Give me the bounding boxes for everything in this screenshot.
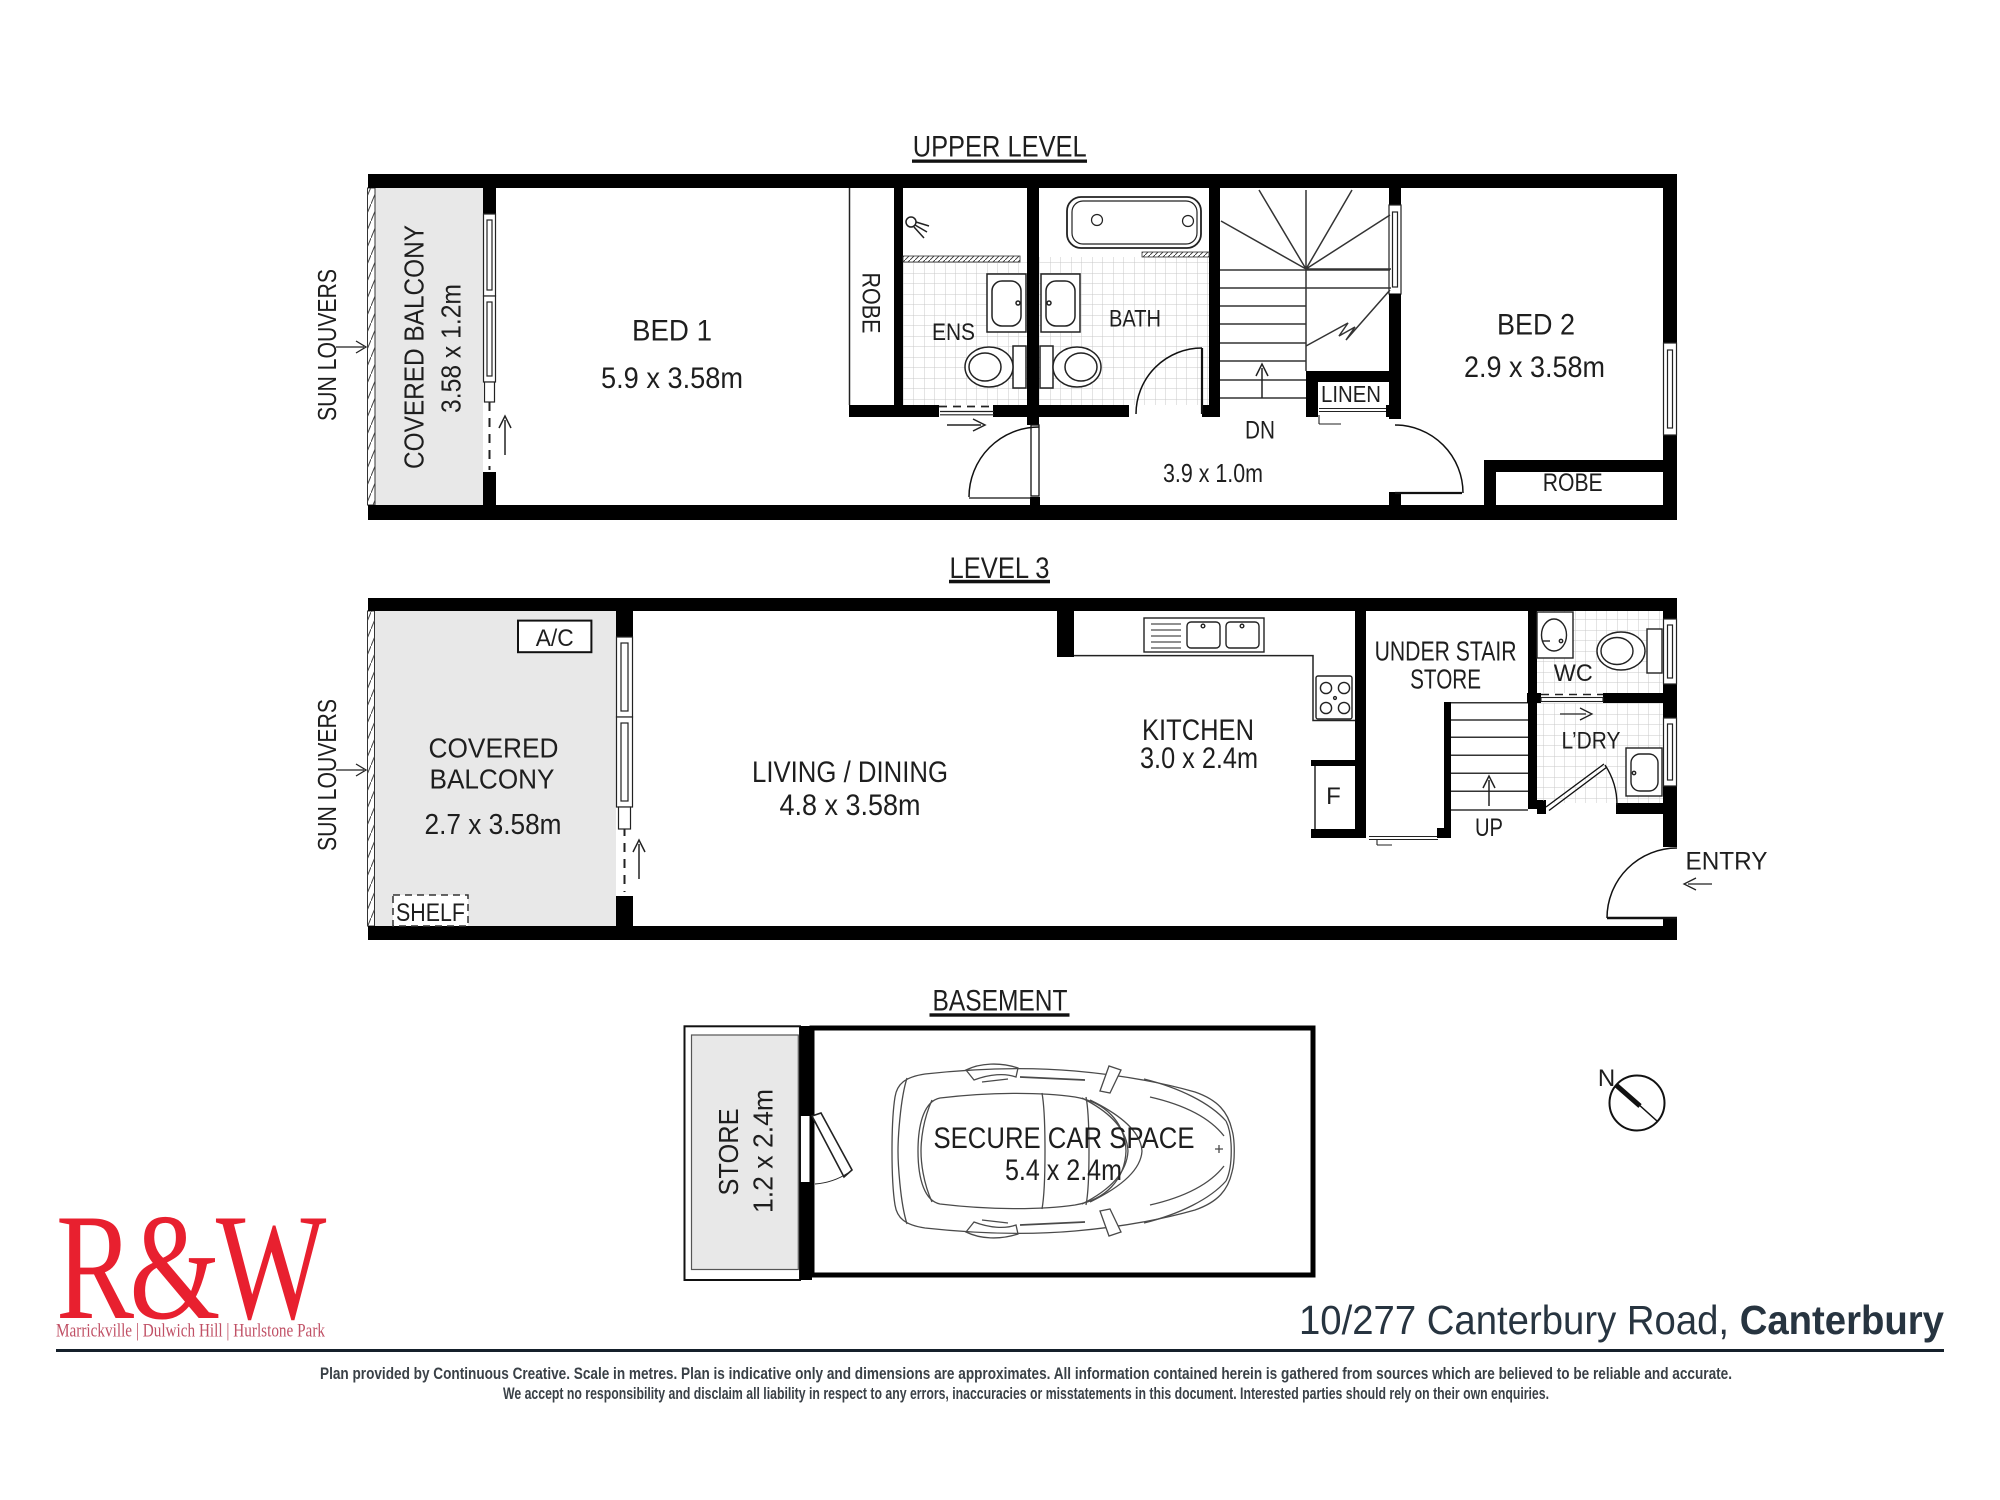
svg-text:ENS: ENS	[932, 319, 975, 346]
svg-text:A/C: A/C	[536, 625, 574, 652]
svg-text:COVERED: COVERED	[429, 733, 559, 764]
svg-text:BED 2: BED 2	[1497, 309, 1575, 342]
svg-text:COVERED BALCONY: COVERED BALCONY	[399, 225, 430, 469]
svg-text:BATH: BATH	[1109, 306, 1161, 333]
svg-text:BASEMENT: BASEMENT	[933, 985, 1068, 1018]
svg-text:Plan provided by Continuous Cr: Plan provided by Continuous Creative. Sc…	[320, 1365, 1732, 1383]
svg-text:3.58 x 1.2m: 3.58 x 1.2m	[436, 284, 467, 413]
svg-text:3.0 x 2.4m: 3.0 x 2.4m	[1140, 742, 1258, 775]
svg-text:2.7 x 3.58m: 2.7 x 3.58m	[425, 809, 562, 841]
svg-text:LINEN: LINEN	[1321, 381, 1381, 407]
svg-text:ENTRY: ENTRY	[1686, 848, 1768, 876]
svg-text:3.9 x 1.0m: 3.9 x 1.0m	[1163, 458, 1263, 488]
svg-text:STORE: STORE	[1410, 664, 1481, 695]
svg-text:SUN LOUVERS: SUN LOUVERS	[312, 269, 342, 421]
svg-text:SECURE CAR SPACE: SECURE CAR SPACE	[934, 1122, 1195, 1155]
svg-text:N: N	[1598, 1065, 1615, 1092]
svg-text:SHELF: SHELF	[396, 899, 465, 927]
svg-text:STORE: STORE	[713, 1109, 744, 1196]
svg-text:1.2 x 2.4m: 1.2 x 2.4m	[748, 1089, 779, 1213]
svg-text:UP: UP	[1475, 814, 1503, 842]
svg-text:F: F	[1326, 783, 1341, 810]
svg-text:SUN LOUVERS: SUN LOUVERS	[312, 699, 342, 851]
svg-text:ROBE: ROBE	[857, 273, 885, 334]
svg-text:WC: WC	[1554, 660, 1593, 687]
svg-text:DN: DN	[1245, 417, 1275, 445]
svg-text:5.9 x 3.58m: 5.9 x 3.58m	[601, 362, 743, 395]
svg-text:UPPER LEVEL: UPPER LEVEL	[913, 130, 1087, 163]
svg-text:BED 1: BED 1	[632, 315, 712, 348]
svg-text:Marrickville | Dulwich Hill |: Marrickville | Dulwich Hill | Hurlstone …	[56, 1321, 325, 1342]
svg-text:LIVING / DINING: LIVING / DINING	[752, 756, 948, 789]
svg-text:5.4 x 2.4m: 5.4 x 2.4m	[1005, 1154, 1122, 1187]
svg-text:L’DRY: L’DRY	[1562, 728, 1621, 755]
svg-text:4.8 x 3.58m: 4.8 x 3.58m	[780, 789, 921, 822]
svg-text:BALCONY: BALCONY	[430, 764, 555, 795]
svg-text:2.9 x 3.58m: 2.9 x 3.58m	[1464, 351, 1605, 384]
svg-text:UNDER STAIR: UNDER STAIR	[1375, 636, 1517, 667]
svg-text:10/277 Canterbury Road, Canter: 10/277 Canterbury Road, Canterbury	[1299, 1297, 1944, 1343]
svg-text:We accept no responsibility an: We accept no responsibility and disclaim…	[503, 1385, 1549, 1403]
svg-text:ROBE: ROBE	[1543, 469, 1603, 497]
